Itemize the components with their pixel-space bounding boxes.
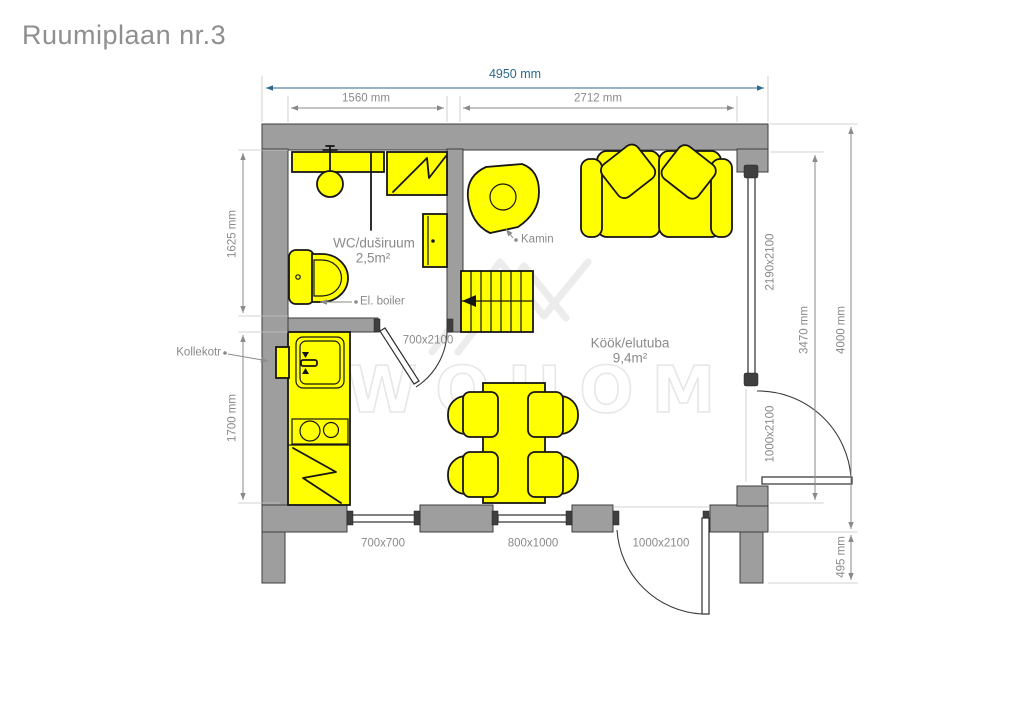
living-room-name: Köök/elutuba — [591, 336, 670, 350]
chair-back — [528, 452, 563, 497]
wall-south-4 — [710, 505, 768, 532]
dim-foundation: 495 mm — [836, 536, 848, 578]
label-window-small: 700x700 — [361, 538, 405, 550]
label-window-mid: 800x1000 — [508, 538, 559, 550]
foundation-leg-left — [262, 532, 285, 583]
wall-west — [262, 149, 288, 506]
wc-fixtures — [289, 146, 447, 304]
boiler-leader-dot — [354, 300, 358, 304]
label-kamin: Kamin — [521, 234, 554, 246]
label-interior-door: 700x2100 — [403, 335, 454, 347]
kollektor-leader-dot — [223, 351, 227, 355]
dim-total-height: 4000 mm — [836, 306, 848, 354]
sofa — [581, 141, 732, 237]
window-glazing — [498, 515, 567, 522]
toilet-tank — [289, 250, 314, 304]
wall-east-bottom-corner — [737, 486, 768, 506]
washbasin-bowl — [317, 171, 343, 197]
wall-wc-south — [288, 318, 378, 332]
sofa-armrest-left — [581, 159, 602, 237]
stairs — [461, 271, 533, 332]
wc-cabinet — [423, 214, 447, 267]
wall-south-3 — [572, 505, 613, 532]
dining-set — [448, 383, 578, 503]
window-700x700 — [347, 511, 420, 525]
label-kollektor: Kollekotr — [176, 347, 221, 359]
door-jamb — [447, 319, 453, 332]
living-room-area: 9,4m² — [613, 351, 648, 365]
window-cap — [414, 511, 420, 525]
door-jamb — [613, 511, 619, 525]
glazing-panel — [748, 172, 755, 380]
label-boiler: El. boiler — [360, 296, 405, 308]
kitchen-counter — [276, 332, 350, 505]
fireplace — [468, 164, 539, 233]
window-800x1000 — [492, 511, 572, 525]
kamin-leader — [506, 229, 513, 238]
dim-wc-width: 1560 mm — [342, 93, 390, 105]
floorplan-page: WOHOM — [0, 0, 1024, 724]
wc-cabinet-handle — [431, 239, 435, 243]
south-door-1000x2100 — [613, 507, 710, 614]
foundation-leg-right — [740, 532, 763, 583]
label-glazing-east: 2190x2100 — [765, 234, 777, 291]
door-leaf — [702, 518, 709, 614]
east-glazing-2190x2100 — [744, 165, 758, 386]
wc-room-name: WC/duširuum — [333, 236, 415, 250]
glazing-connector — [744, 373, 758, 386]
wall-south-2 — [420, 505, 493, 532]
kollektor-box — [276, 347, 289, 378]
page-title: Ruumiplaan nr.3 — [22, 20, 226, 51]
dim-east-inner: 3470 mm — [799, 306, 811, 354]
sink-faucet-icon — [301, 360, 317, 366]
dim-wc-height: 1625 mm — [227, 210, 239, 258]
east-door-1000x2100 — [746, 389, 852, 484]
door-jamb — [374, 319, 380, 332]
interior-door-700x2100 — [374, 319, 453, 387]
chair-back — [463, 452, 498, 497]
dim-kitchen-height: 1700 mm — [227, 394, 239, 442]
window-cap — [347, 511, 353, 525]
wall-north — [262, 124, 768, 150]
dim-total-width: 4950 mm — [489, 68, 541, 81]
dim-living-width: 2712 mm — [574, 93, 622, 105]
window-cap — [492, 511, 498, 525]
window-cap — [566, 511, 572, 525]
label-door-south: 1000x2100 — [633, 538, 690, 550]
fireplace-body — [468, 164, 539, 233]
glazing-connector — [744, 165, 758, 178]
door-leaf — [762, 477, 852, 484]
kamin-leader-dot — [514, 238, 518, 242]
chair-back — [528, 392, 563, 437]
window-glazing — [352, 515, 415, 522]
label-door-east: 1000x2100 — [765, 406, 777, 463]
wall-south-1 — [262, 505, 347, 532]
chair-back — [463, 392, 498, 437]
floorplan-drawing — [0, 0, 1024, 724]
wc-room-area: 2,5m² — [356, 251, 391, 265]
